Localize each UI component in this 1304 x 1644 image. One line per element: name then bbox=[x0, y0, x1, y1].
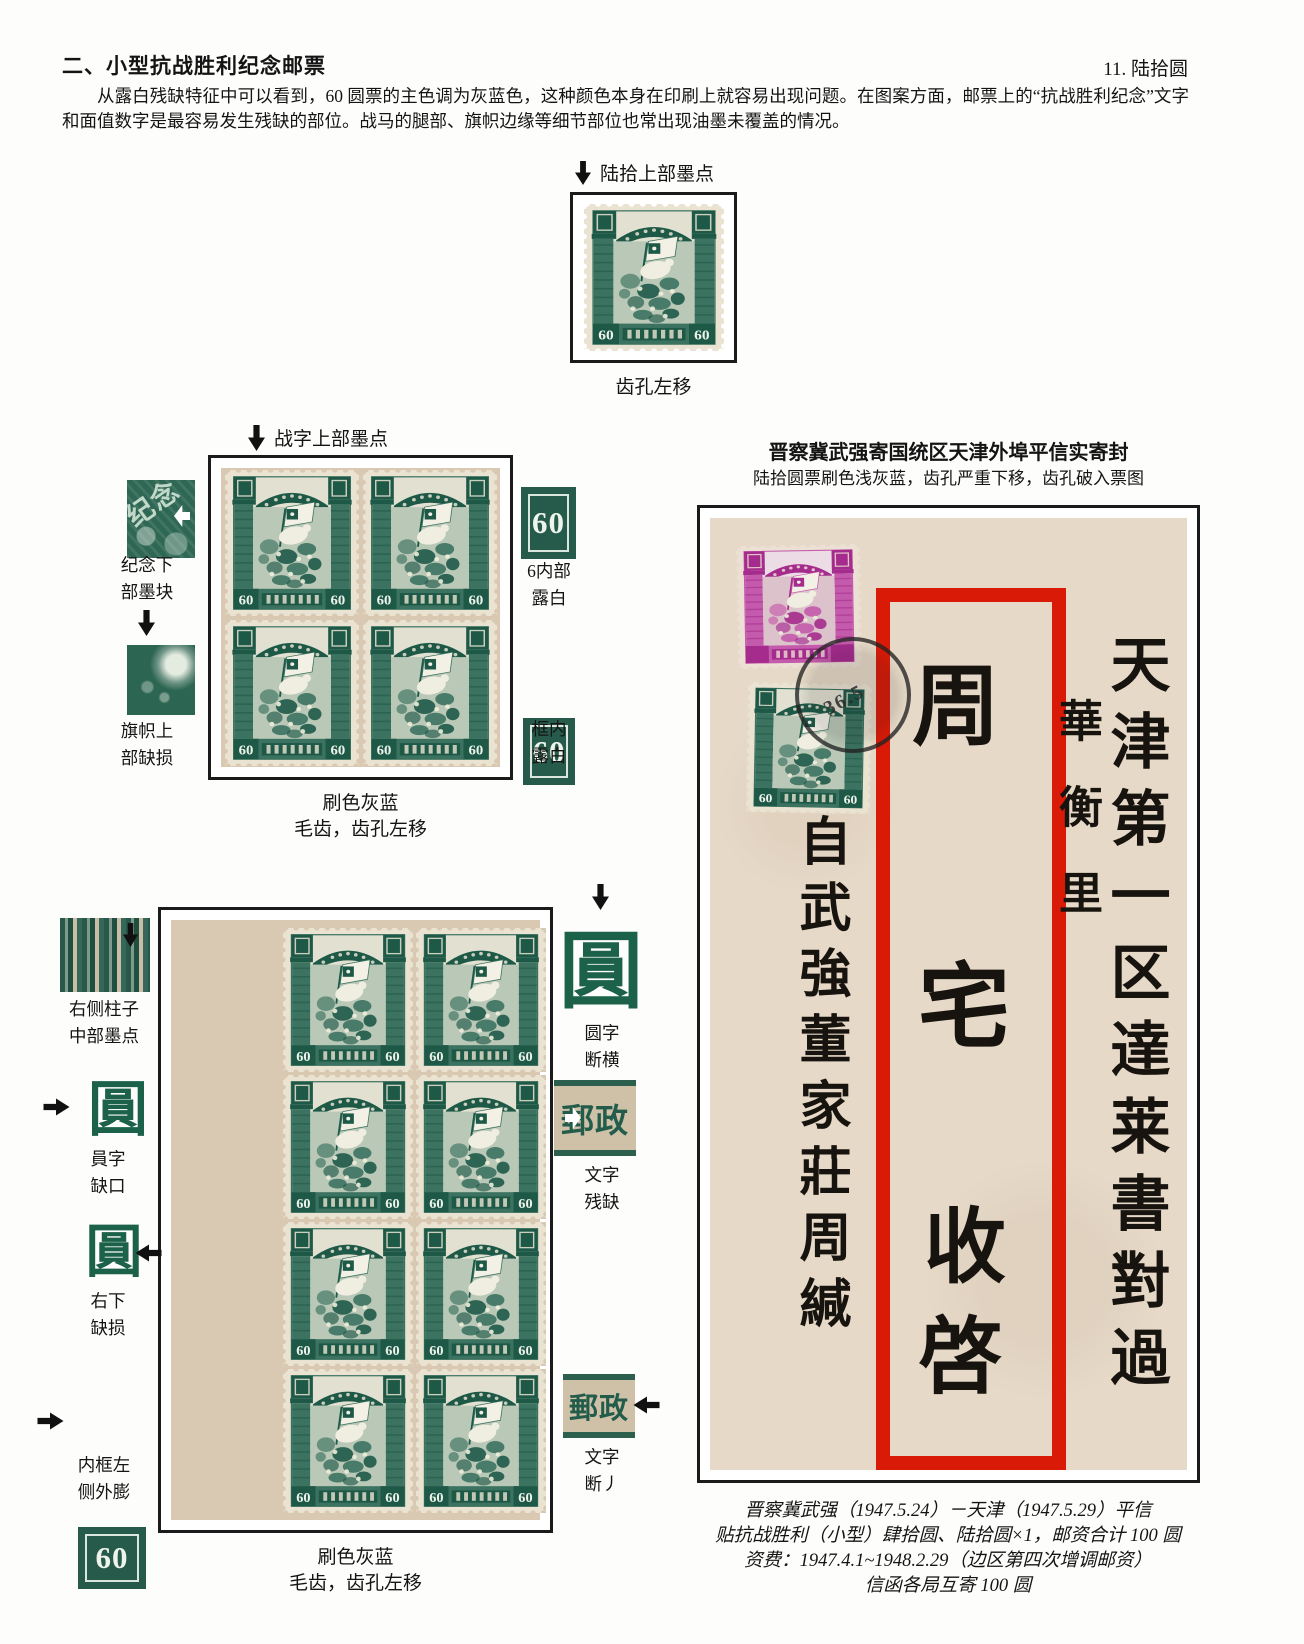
annotation-label: 文字 断丿 bbox=[558, 1444, 646, 1498]
down-arrow-icon bbox=[248, 425, 265, 451]
svg-text:60: 60 bbox=[238, 743, 253, 758]
cover-caption: 信函各局互寄 100 圆 bbox=[658, 1571, 1238, 1597]
block4-annotation: 战字上部墨点 bbox=[248, 424, 388, 451]
stamp-60yuan-green: 6060 bbox=[225, 470, 359, 616]
svg-text:60: 60 bbox=[385, 1049, 399, 1064]
svg-text:60: 60 bbox=[518, 1490, 532, 1505]
annotation-label: 旗帜上 部缺损 bbox=[90, 718, 204, 772]
svg-text:60: 60 bbox=[330, 593, 345, 608]
annotation-label: 員字 缺口 bbox=[62, 1146, 154, 1200]
down-arrow-icon bbox=[575, 161, 591, 185]
annotation-label: 战字上部墨点 bbox=[274, 424, 388, 451]
svg-text:60: 60 bbox=[694, 328, 709, 343]
label-line: 文字 bbox=[558, 1444, 646, 1471]
down-arrow-icon bbox=[123, 923, 138, 947]
stamp-60yuan-green: 6060 bbox=[416, 1369, 546, 1513]
label-line: 残缺 bbox=[558, 1189, 646, 1216]
svg-text:60: 60 bbox=[385, 1196, 399, 1211]
stamp-60yuan-green: 6060 bbox=[283, 928, 413, 1072]
label-line: 框内 bbox=[505, 716, 593, 743]
block4-caption: 毛齿，齿孔左移 bbox=[208, 814, 513, 841]
svg-text:60: 60 bbox=[385, 1490, 399, 1505]
postmark-date: 36.5 bbox=[820, 680, 869, 720]
right-arrow-icon bbox=[38, 1413, 64, 1430]
label-line: 露白 bbox=[505, 585, 593, 612]
right-arrow-icon bbox=[44, 1099, 70, 1116]
cover-caption: 晋察冀武强（1947.5.24）－天津（1947.5.29）平信 bbox=[658, 1496, 1238, 1522]
down-arrow-icon bbox=[592, 884, 609, 910]
annotation-label: 纪念下 部墨块 bbox=[90, 552, 204, 606]
cover-caption: 贴抗战胜利（小型）肆拾圆、陆拾圆×1，邮资合计 100 圆 bbox=[658, 1521, 1238, 1547]
calligraphy-addressee-char: 收 bbox=[924, 1180, 1006, 1299]
label-line: 旗帜上 bbox=[90, 718, 204, 745]
stamp-sheet-with-selvage: 6060 6060 6060 6060 6060 6060 6060 6060 bbox=[171, 920, 540, 1520]
detail-crop-60-whitegap: 60 bbox=[521, 487, 576, 559]
label-line: 露白 bbox=[505, 743, 593, 770]
cover-caption: 资费：1947.4.1~1948.2.29（边区第四次增调邮资） bbox=[658, 1546, 1238, 1572]
svg-text:60: 60 bbox=[429, 1343, 443, 1358]
right-arrow-icon bbox=[565, 1107, 581, 1129]
svg-text:60: 60 bbox=[844, 793, 858, 806]
svg-text:60: 60 bbox=[429, 1049, 443, 1064]
single-stamp-figure: 6060 bbox=[570, 192, 737, 363]
left-arrow-icon bbox=[136, 1245, 162, 1262]
svg-text:60: 60 bbox=[468, 743, 483, 758]
svg-text:60: 60 bbox=[296, 1049, 310, 1064]
stamp-60yuan-green: 6060 bbox=[416, 1075, 546, 1219]
calligraphy-addressee-char: 宅 bbox=[918, 933, 1010, 1066]
block8-caption: 毛齿，齿孔左移 bbox=[158, 1568, 553, 1595]
block4-caption: 刷色灰蓝 bbox=[208, 788, 513, 815]
label-line: 断横 bbox=[558, 1047, 646, 1074]
detail-crop-pillar-inkdot bbox=[60, 918, 150, 992]
label-line: 員字 bbox=[62, 1146, 154, 1173]
stamp-60yuan-green: 6060 bbox=[584, 204, 724, 351]
detail-crop-text-brokenstroke: 郵政 bbox=[563, 1374, 635, 1438]
down-arrow-icon bbox=[138, 610, 155, 636]
annotation-label: 陆拾上部墨点 bbox=[600, 159, 714, 186]
label-line: 文字 bbox=[558, 1162, 646, 1189]
label-line: 6内部 bbox=[505, 558, 593, 585]
stamp-60yuan-green: 6060 bbox=[283, 1075, 413, 1219]
single-stamp-annotation: 陆拾上部墨点 bbox=[575, 159, 714, 186]
label-line: 侧外膨 bbox=[44, 1479, 164, 1506]
block8-caption: 刷色灰蓝 bbox=[158, 1542, 553, 1569]
svg-text:60: 60 bbox=[759, 792, 773, 805]
svg-text:60: 60 bbox=[296, 1343, 310, 1358]
stamp-60yuan-green: 6060 bbox=[363, 620, 497, 766]
postmark: 36.5 bbox=[795, 637, 911, 753]
detail-crop-flag-damage bbox=[127, 645, 195, 715]
album-page: 二、小型抗战胜利纪念邮票 11. 陆拾圆 从露白残缺特征中可以看到，60 圆票的… bbox=[0, 0, 1304, 1644]
section-title: 二、小型抗战胜利纪念邮票 bbox=[62, 50, 326, 80]
label-line: 断丿 bbox=[558, 1471, 646, 1498]
label-line: 部缺损 bbox=[90, 745, 204, 772]
calligraphy-addressee-char: 周 bbox=[912, 636, 1000, 763]
label-line: 纪念下 bbox=[90, 552, 204, 579]
svg-text:60: 60 bbox=[518, 1196, 532, 1211]
label-line: 右侧柱子 bbox=[44, 996, 164, 1023]
block-of-eight-figure: 6060 6060 6060 6060 6060 6060 6060 6060 bbox=[158, 907, 553, 1533]
figure-caption: 齿孔左移 bbox=[570, 372, 737, 399]
page-number: 11. 陆拾圆 bbox=[1000, 54, 1188, 81]
value-60: 60 bbox=[521, 487, 576, 559]
label-line: 部墨块 bbox=[90, 579, 204, 606]
cover-title: 晋察冀武强寄国统区天津外埠平信实寄封 bbox=[697, 436, 1200, 465]
svg-text:60: 60 bbox=[376, 743, 391, 758]
label-line: 缺损 bbox=[62, 1315, 154, 1342]
stamp-60yuan-green: 6060 bbox=[225, 620, 359, 766]
stamp-60yuan-green: 6060 bbox=[363, 470, 497, 616]
annotation-label: 右下 缺损 bbox=[62, 1288, 154, 1342]
annotation-label: 圆字 断横 bbox=[558, 1020, 646, 1074]
svg-text:60: 60 bbox=[468, 593, 483, 608]
svg-text:60: 60 bbox=[518, 1049, 532, 1064]
stamp-sheet: 6060 6060 6060 6060 bbox=[221, 468, 500, 767]
svg-text:60: 60 bbox=[330, 743, 345, 758]
annotation-label: 6内部 露白 bbox=[505, 558, 593, 612]
svg-text:60: 60 bbox=[296, 1196, 310, 1211]
left-arrow-icon bbox=[634, 1397, 660, 1414]
svg-text:60: 60 bbox=[296, 1490, 310, 1505]
stamp-60yuan-green: 6060 bbox=[283, 1369, 413, 1513]
svg-text:60: 60 bbox=[429, 1490, 443, 1505]
envelope: 6060 36.5 天津第一区達莱書對過 華衡里 周 宅 收 啓 自武強董家莊周… bbox=[710, 518, 1187, 1470]
detail-crop-text-missing: 郵政 bbox=[554, 1080, 636, 1156]
stamp-60yuan-green: 6060 bbox=[416, 1222, 546, 1366]
post-characters: 郵政 bbox=[569, 1385, 629, 1427]
annotation-label: 文字 残缺 bbox=[558, 1162, 646, 1216]
block-of-four-figure: 6060 6060 6060 6060 bbox=[208, 455, 513, 780]
annotation-label: 框内 露白 bbox=[505, 716, 593, 770]
svg-text:60: 60 bbox=[238, 593, 253, 608]
label-line: 右下 bbox=[62, 1288, 154, 1315]
calligraphy-addressee-char: 啓 bbox=[918, 1290, 1002, 1411]
svg-text:60: 60 bbox=[518, 1343, 532, 1358]
cover-figure: 6060 36.5 天津第一区達莱書對過 華衡里 周 宅 收 啓 自武強董家莊周… bbox=[697, 505, 1200, 1483]
detail-crop-yuan-notch: 圓 bbox=[86, 1066, 150, 1142]
svg-text:60: 60 bbox=[429, 1196, 443, 1211]
annotation-label: 右侧柱子 中部墨点 bbox=[44, 996, 164, 1050]
stamp-60yuan-green: 6060 bbox=[283, 1222, 413, 1366]
stamp-60yuan-green: 6060 bbox=[416, 928, 546, 1072]
label-line: 缺口 bbox=[62, 1173, 154, 1200]
detail-crop-60-framebulge: 60 bbox=[78, 1527, 146, 1589]
svg-text:60: 60 bbox=[376, 593, 391, 608]
svg-text:60: 60 bbox=[598, 328, 613, 343]
annotation-label: 内框左 侧外膨 bbox=[44, 1452, 164, 1506]
calligraphy-sender-column: 自武強董家莊周緘 bbox=[782, 814, 857, 1474]
left-arrow-icon bbox=[174, 505, 190, 527]
detail-crop-jinian-ink-blot: 纪念 bbox=[127, 480, 195, 558]
detail-crop-yuan-brokenline: 圓 bbox=[556, 914, 646, 1014]
label-line: 圆字 bbox=[558, 1020, 646, 1047]
cover-subtitle: 陆拾圆票刷色浅灰蓝，齿孔严重下移，齿孔破入票图 bbox=[640, 464, 1257, 489]
label-line: 中部墨点 bbox=[44, 1023, 164, 1050]
label-line: 内框左 bbox=[44, 1452, 164, 1479]
intro-paragraph: 从露白残缺特征中可以看到，60 圆票的主色调为灰蓝色，这种颜色本身在印刷上就容易… bbox=[62, 84, 1189, 134]
calligraphy-lane-column: 華衡里 bbox=[1044, 698, 1108, 998]
value-60: 60 bbox=[78, 1527, 146, 1589]
svg-text:60: 60 bbox=[385, 1343, 399, 1358]
